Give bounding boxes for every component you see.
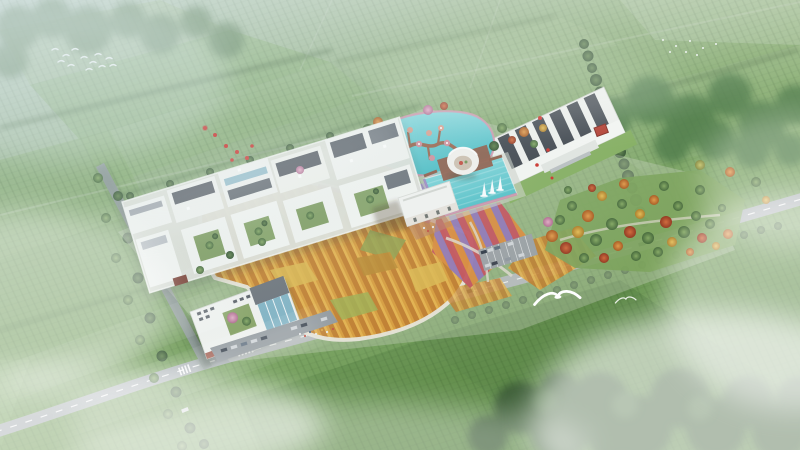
aerial-rendering-image [0,0,800,450]
mist [0,0,800,450]
screenshot-root [0,0,800,450]
